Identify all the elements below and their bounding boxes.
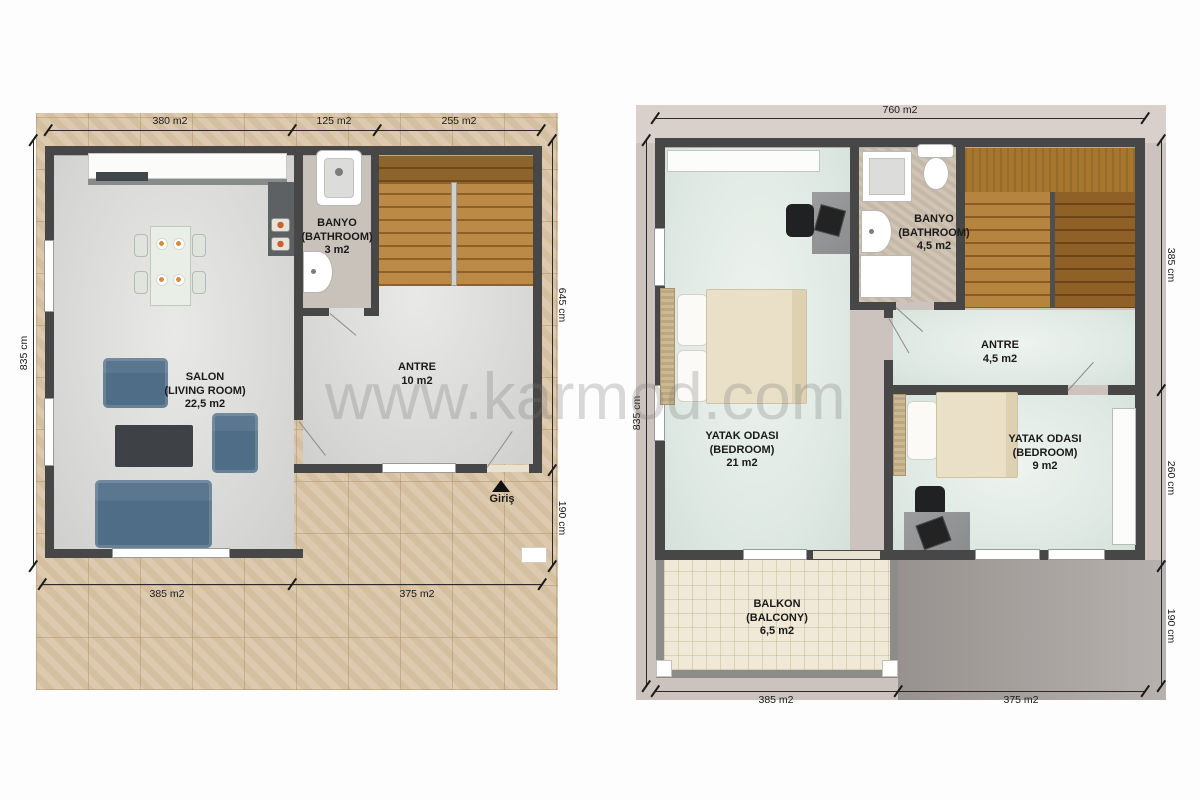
salon-banyo-divider-wall <box>294 146 303 420</box>
dim-label: 380 m2 <box>152 115 187 127</box>
ground-wall-left <box>45 146 54 558</box>
ground-wall-right <box>533 146 542 473</box>
bedroom2-pillow <box>907 401 938 460</box>
dim-label: 260 cm <box>1165 461 1177 495</box>
bedroom2-wardrobe <box>1112 408 1136 545</box>
ground-antre-label: ANTRE 10 m2 <box>367 361 467 388</box>
bedroom1-bed-headboard <box>660 288 675 405</box>
doormat <box>521 547 547 563</box>
dim-label: 385 cm <box>1165 248 1177 282</box>
dim-label: 375 m2 <box>399 588 434 600</box>
bedroom2-label: YATAK ODASI (BEDROOM) 9 m2 <box>985 433 1105 474</box>
entrance-arrow-icon <box>492 480 510 492</box>
room-name: SALON <box>145 371 265 385</box>
upper-shower-inner <box>869 158 905 195</box>
room-alt-name: (BEDROOM) <box>682 444 802 458</box>
upper-bath-cabinet <box>860 255 912 298</box>
dim-label: 385 m2 <box>149 588 184 600</box>
upper-banyo-wall-bottom-right <box>934 302 965 310</box>
bedroom1-bed-blanket <box>706 289 807 404</box>
room-name: YATAK ODASI <box>682 430 802 444</box>
bedroom2-window-bottom-1 <box>975 549 1040 560</box>
plate-icon <box>173 238 185 250</box>
upper-dim-line-left <box>646 140 647 686</box>
antre-wall-bottom-right <box>529 464 542 473</box>
ground-dim-line-left <box>33 140 34 566</box>
ground-dim-line-right <box>552 140 553 566</box>
room-name: YATAK ODASI <box>985 433 1105 447</box>
toilet-tank <box>917 144 954 158</box>
dim-label: 760 m2 <box>882 104 917 116</box>
upper-stairs-landing <box>965 148 1135 192</box>
bedroom1-wardrobe-shelf <box>667 150 820 172</box>
salon-window-left-1 <box>44 240 54 312</box>
room-area: 4,5 m2 <box>888 240 980 254</box>
plate-icon <box>173 274 185 286</box>
bedroom2-window-bottom-2 <box>1048 549 1105 560</box>
dim-label: 835 cm <box>631 396 643 430</box>
room-name: BANYO <box>888 213 980 227</box>
entrance-door-opening <box>487 465 529 472</box>
room-alt-name: (BATHROOM) <box>888 227 980 241</box>
kitchen-dish-icon-2 <box>271 237 290 251</box>
dining-table <box>150 226 191 306</box>
room-alt-name: (LIVING ROOM) <box>145 385 265 399</box>
room-alt-name: (BEDROOM) <box>985 447 1105 461</box>
ground-stairs-upper-shade <box>379 156 533 184</box>
room-area: 4,5 m2 <box>950 353 1050 367</box>
salon-window-bottom <box>112 548 230 558</box>
entrance-label: Giriş <box>489 493 514 505</box>
dining-chair <box>134 271 148 294</box>
dim-label: 125 m2 <box>316 115 351 127</box>
dining-chair <box>192 271 206 294</box>
room-name: BALKON <box>717 598 837 612</box>
sink-drain-dot <box>311 269 316 274</box>
upper-stairs-rail <box>1050 192 1055 308</box>
toilet-unit-inner <box>324 158 354 198</box>
balcony-door-opening <box>813 551 880 559</box>
stove-icon <box>96 172 148 181</box>
dining-chair <box>134 234 148 257</box>
room-area: 10 m2 <box>367 375 467 389</box>
dining-chair <box>192 234 206 257</box>
ground-stairs-rail <box>451 182 457 286</box>
room-alt-name: (BATHROOM) <box>294 231 380 245</box>
upper-wall-right <box>1135 138 1145 560</box>
dim-label: 645 cm <box>556 288 568 322</box>
dim-label: 255 m2 <box>441 115 476 127</box>
balcony-wall-bottom <box>656 670 898 678</box>
room-area: 6,5 m2 <box>717 625 837 639</box>
balcony-post <box>656 660 672 677</box>
upper-dim-line-bottom <box>655 691 1145 692</box>
bedroom1-divider-wall-upper <box>884 302 893 318</box>
dim-label: 190 cm <box>556 501 568 535</box>
sink-drain-dot <box>869 229 874 234</box>
bedroom1-office-chair <box>786 204 814 237</box>
plate-icon <box>156 274 168 286</box>
coffee-table <box>115 425 193 467</box>
antre-bedroom2-wall-right <box>1108 385 1135 395</box>
upper-banyo-label: BANYO (BATHROOM) 4,5 m2 <box>888 213 980 254</box>
dim-label: 190 cm <box>1165 609 1177 643</box>
upper-wall-top <box>655 138 1145 148</box>
drain-dot <box>335 168 343 176</box>
bedroom1-pillow <box>677 350 708 402</box>
antre-window-bottom <box>382 463 456 473</box>
upper-dim-line-top <box>655 118 1145 119</box>
floor-plan-canvas: Giriş SALON (LIVING ROOM) 22,5 m2 BANYO … <box>0 0 1200 800</box>
bedroom1-window-bottom <box>743 549 807 560</box>
room-name: ANTRE <box>367 361 467 375</box>
upper-stairs-right-flight <box>1055 192 1135 308</box>
upper-dim-line-right <box>1161 140 1162 686</box>
room-area: 21 m2 <box>682 457 802 471</box>
toilet-bowl <box>923 157 949 190</box>
room-area: 3 m2 <box>294 244 380 258</box>
salon-label: SALON (LIVING ROOM) 22,5 m2 <box>145 371 265 412</box>
upper-banyo-wall-left <box>850 138 859 310</box>
room-name: BANYO <box>294 217 380 231</box>
bedroom1-label: YATAK ODASI (BEDROOM) 21 m2 <box>682 430 802 471</box>
bedroom1-window-left-1 <box>654 228 665 286</box>
ground-banyo-label: BANYO (BATHROOM) 3 m2 <box>294 217 380 258</box>
banyo-wall-bottom-left <box>303 308 329 316</box>
dim-label: 835 cm <box>18 336 30 370</box>
dim-label: 375 m2 <box>1003 694 1038 706</box>
room-area: 22,5 m2 <box>145 398 265 412</box>
room-alt-name: (BALCONY) <box>717 612 837 626</box>
room-area: 9 m2 <box>985 460 1105 474</box>
plate-icon <box>156 238 168 250</box>
kitchen-dish-icon-1 <box>271 218 290 232</box>
salon-window-left-2 <box>44 398 54 466</box>
upper-antre-label: ANTRE 4,5 m2 <box>950 339 1050 366</box>
bedroom2-bed-headboard <box>893 394 906 476</box>
balcony-post <box>882 660 898 677</box>
balcony-label: BALKON (BALCONY) 6,5 m2 <box>717 598 837 639</box>
lower-roof-area <box>898 560 1166 700</box>
armchair <box>212 413 258 473</box>
sofa <box>95 480 212 548</box>
dim-label: 385 m2 <box>758 694 793 706</box>
bedroom1-pillow <box>677 294 708 346</box>
room-name: ANTRE <box>950 339 1050 353</box>
ground-dim-line-top <box>48 130 541 131</box>
